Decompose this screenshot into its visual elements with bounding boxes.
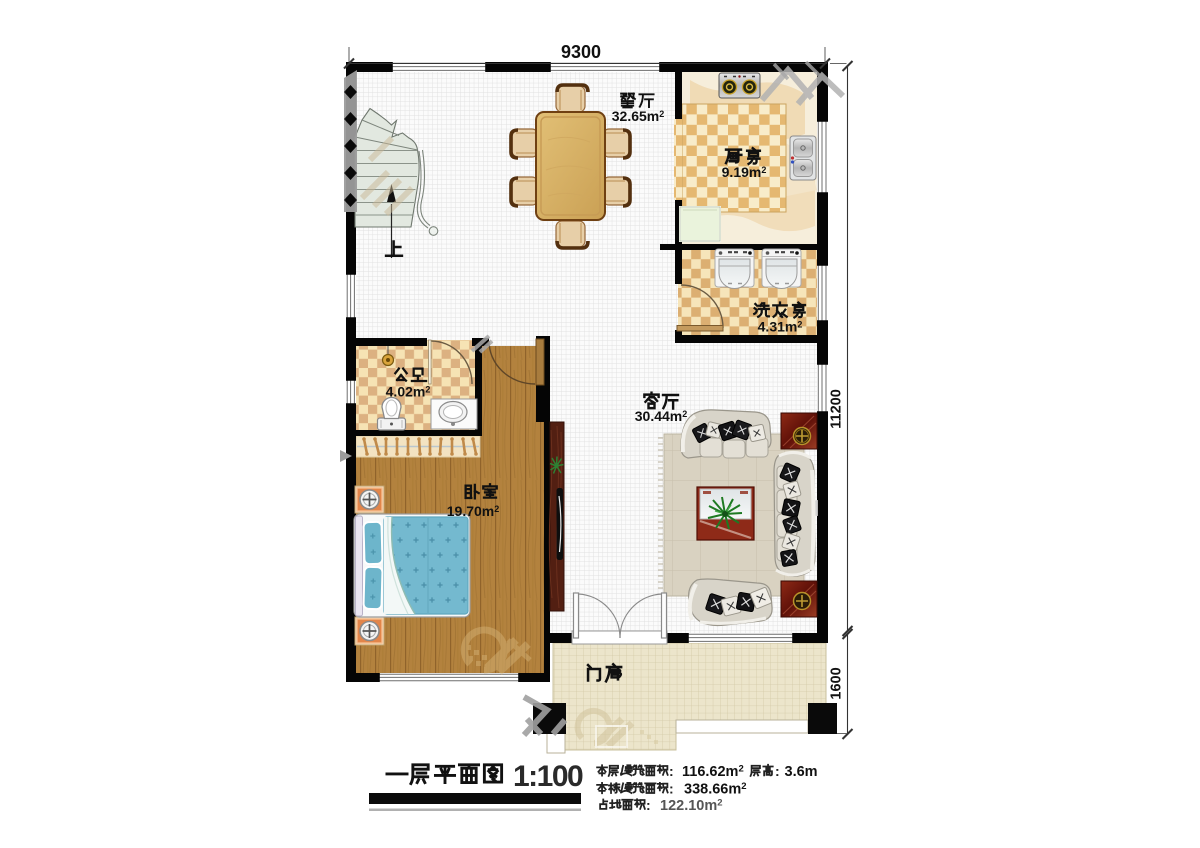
svg-text:1600: 1600 <box>829 667 845 699</box>
svg-text:9.19m2: 9.19m2 <box>722 164 767 180</box>
svg-text:19.70m2: 19.70m2 <box>447 503 500 519</box>
svg-text::: : <box>646 797 651 813</box>
svg-text::: : <box>669 781 674 797</box>
svg-text:11200: 11200 <box>829 389 845 429</box>
svg-text::: : <box>775 763 780 779</box>
svg-text:122.10m2: 122.10m2 <box>660 798 723 815</box>
svg-text:30.44m2: 30.44m2 <box>635 408 688 424</box>
svg-text:4.02m2: 4.02m2 <box>386 384 431 400</box>
svg-text:9300: 9300 <box>561 42 601 62</box>
svg-text:116.62m2: 116.62m2 <box>682 764 744 781</box>
svg-text:32.65m2: 32.65m2 <box>612 108 665 124</box>
svg-text::: : <box>669 763 674 779</box>
svg-text:4.31m2: 4.31m2 <box>758 319 803 335</box>
svg-text:1:100: 1:100 <box>513 760 583 793</box>
svg-text:3.6m: 3.6m <box>785 764 818 780</box>
svg-text:338.66m2: 338.66m2 <box>684 781 747 798</box>
